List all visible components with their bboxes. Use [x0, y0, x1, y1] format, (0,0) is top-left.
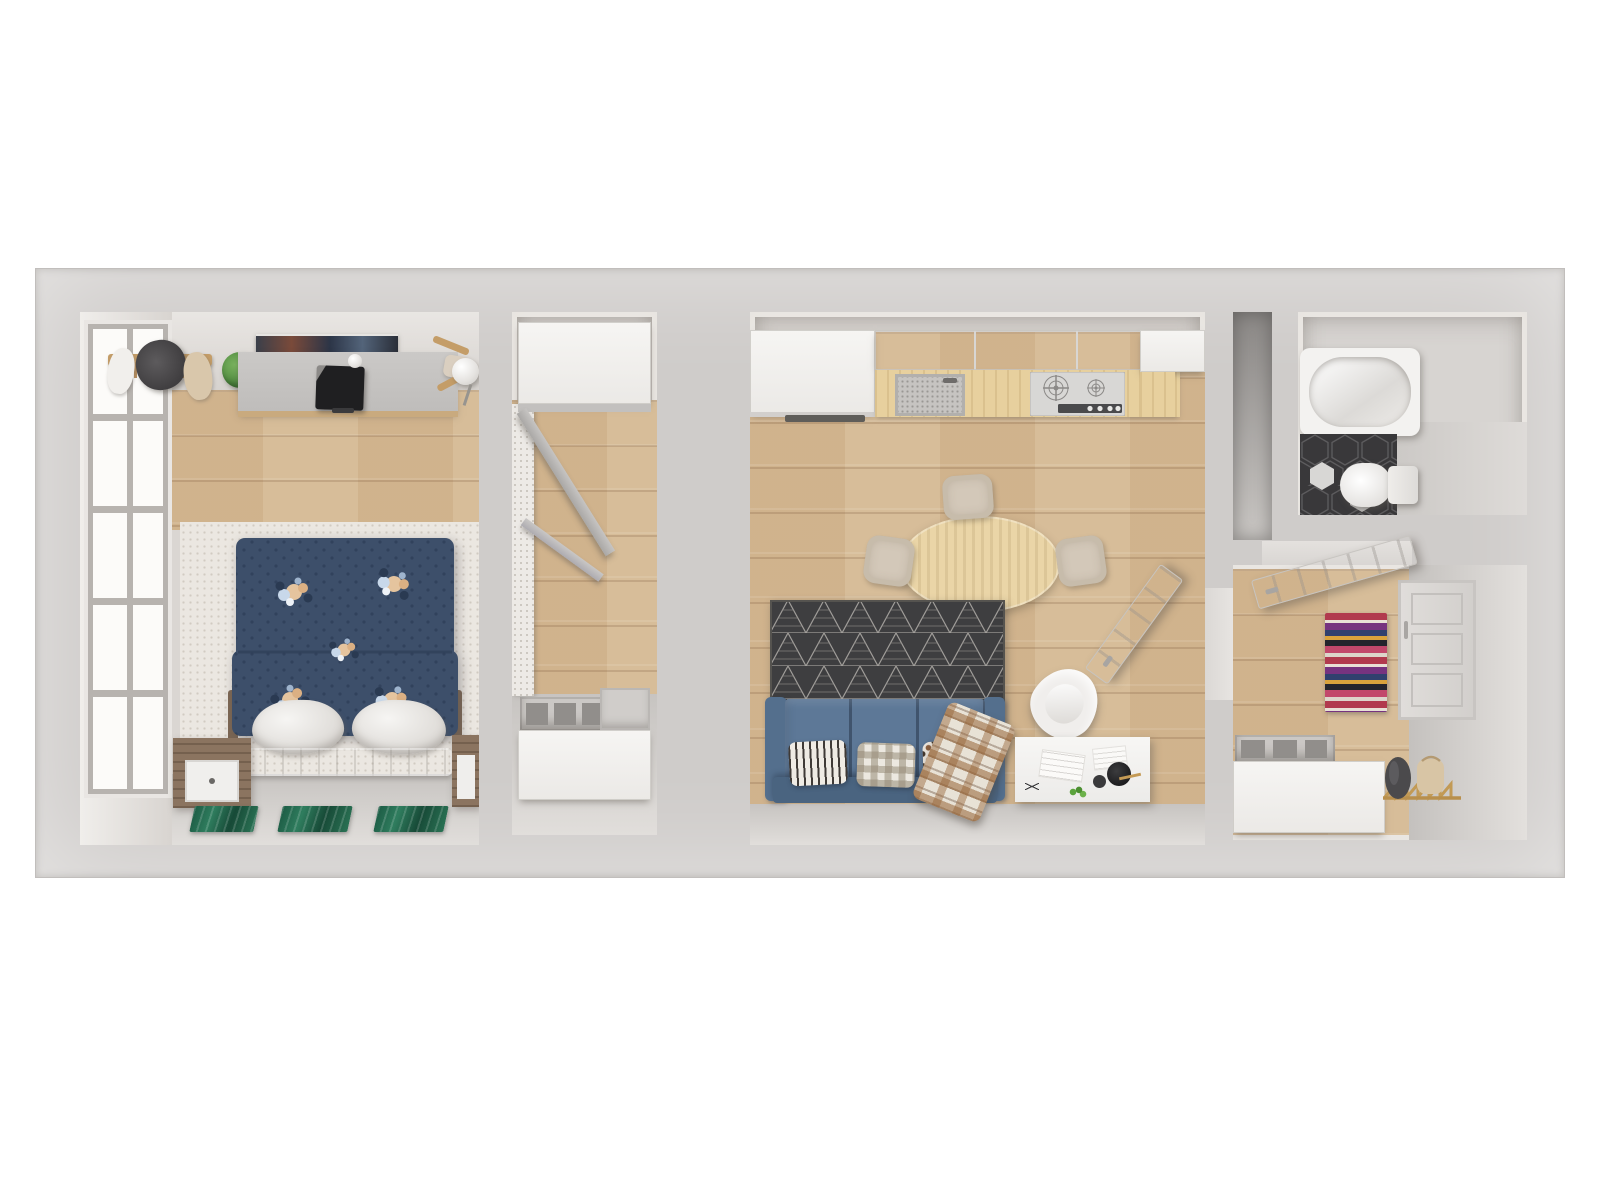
apartment-floor-plan: [0, 0, 1600, 1200]
front-door-panel: [1411, 593, 1463, 625]
living-desk: [1015, 737, 1150, 802]
room-bedroom: [80, 312, 479, 845]
kitchen-wall-cabinets: [875, 330, 1180, 370]
green-mat-3: [373, 806, 449, 832]
desk-speaker-ball: [348, 354, 362, 368]
entry-storage-bins: [1235, 735, 1335, 763]
front-door: [1398, 580, 1476, 720]
wall-art: [256, 334, 398, 354]
green-mat-1: [189, 806, 259, 832]
armchair-seat: [1038, 677, 1091, 731]
bin-slot: [1305, 740, 1327, 758]
dining-chair-top: [942, 473, 995, 520]
kitchen-rail: [785, 415, 865, 422]
desk-lamp-shade: [1107, 762, 1131, 786]
fridge-cabinet: [750, 330, 875, 414]
entry-door-handle: [1265, 586, 1279, 594]
closet-side-shelf: [512, 404, 534, 696]
closet-lower-cabinet: [518, 730, 651, 800]
bathtub-basin: [1309, 357, 1411, 427]
dining-chair-right: [1054, 534, 1108, 588]
nightstand-knob: [209, 778, 215, 784]
kitchen-corner-counter: [1140, 372, 1175, 417]
sofa-pillow-striped: [788, 740, 848, 787]
bin-slot: [554, 703, 576, 725]
monitor-stand: [332, 408, 354, 413]
desk-scissors: [1025, 783, 1039, 790]
desk-sketch-paper: [1038, 749, 1085, 783]
desk-lamp-base: [1093, 775, 1106, 788]
kitchen-corner-cabinet: [1140, 330, 1205, 372]
kitchen-sink: [895, 374, 965, 416]
front-door-panel: [1411, 673, 1463, 707]
toilet-tank: [1388, 466, 1418, 504]
headboard-bench: [246, 748, 452, 776]
gas-cooktop: [1030, 372, 1125, 416]
entry-striped-rug: [1325, 613, 1387, 712]
nightstand-left: [173, 738, 251, 808]
bin-slot: [526, 703, 548, 725]
shoe-cabinet: [1233, 761, 1385, 833]
closet-side-tray: [600, 688, 650, 730]
bin-slot: [1241, 740, 1265, 758]
coat-rack: [1381, 751, 1463, 809]
closet-shelf-bar: [518, 404, 651, 412]
utility-shaft: [1233, 312, 1272, 540]
living-door-handle: [1102, 655, 1113, 668]
dining-chair-left: [862, 534, 916, 588]
closet-storage-bins: [520, 697, 608, 731]
desk-plant-sprig: [1067, 785, 1087, 799]
room-closet: [512, 312, 657, 835]
sink-faucet: [943, 378, 957, 383]
room-entry-hall: [1233, 565, 1527, 840]
bin-slot: [582, 703, 602, 725]
toilet: [1340, 462, 1420, 508]
bin-slot: [1273, 740, 1297, 758]
front-door-handle: [1404, 621, 1408, 639]
front-door-panel: [1411, 633, 1463, 665]
window-icon: [84, 320, 172, 798]
nightstand-right: [452, 735, 479, 807]
sofa-pillow-gingham: [856, 742, 916, 788]
room-living-kitchen: [750, 312, 1205, 845]
globe-lamp: [452, 358, 479, 385]
closet-upper-cabinet: [518, 322, 651, 404]
nightstand-right-front: [457, 755, 475, 799]
doorway-living-to-hall: [1205, 588, 1233, 700]
dining-table: [900, 516, 1060, 612]
monitor: [315, 365, 365, 411]
room-bathroom: [1298, 312, 1527, 515]
green-mat-2: [277, 806, 353, 832]
toilet-bowl: [1340, 463, 1392, 507]
bathtub: [1300, 348, 1420, 436]
